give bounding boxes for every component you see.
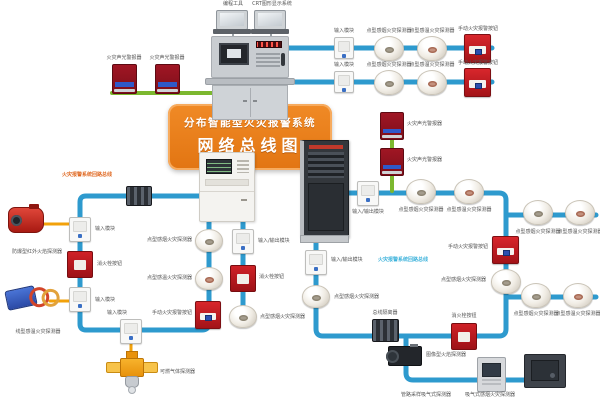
device-label: 手动火灾报警按钮: [456, 60, 501, 66]
device-label: 线型感温火灾探测器: [11, 329, 66, 335]
panel-door-seam: [200, 191, 254, 192]
device-label: 点型感温火灾探测器: [142, 275, 192, 281]
manual-call-point: [464, 34, 491, 63]
smoke-detector: [521, 283, 551, 308]
device-label: 图像型火焰探测器: [426, 352, 471, 358]
smoke-detector: [523, 200, 553, 225]
device-label: 点型感温火灾探测器: [558, 229, 600, 235]
device-label: 输入/输出模块: [331, 257, 376, 263]
aspirating-detector-wall: [477, 357, 506, 392]
hydrant-button: [230, 265, 256, 292]
bus-label-left: 火灾报警系统回路总线: [62, 172, 122, 178]
label-laptop-right: CRT图形显示系统: [249, 1, 295, 7]
device-label: 火灾声光警报器: [407, 157, 452, 163]
smoke-detector: [374, 36, 404, 61]
console-screen: [219, 43, 249, 65]
device-label: 点型感温火灾探测器: [410, 62, 455, 68]
device-label: 手动火灾报警按钮: [456, 26, 501, 32]
device-label: 点型感烟火灾探测器: [514, 311, 559, 317]
device-label: 点型感烟火灾探测器: [142, 237, 192, 243]
device-label: 输入/输出模块: [258, 238, 303, 244]
sound-light-alarm: [380, 112, 404, 140]
input-module: [334, 71, 354, 93]
panel-screen: [206, 159, 232, 174]
cabinet-base: [300, 235, 349, 243]
device-label: 点型感烟火灾探测器: [260, 314, 310, 320]
io-module: [232, 229, 254, 254]
panel-handle: [241, 199, 247, 201]
device-label: 火灾声光警报器: [102, 55, 147, 61]
cabinet-red-strip: [309, 145, 343, 149]
console-pedestal: [212, 85, 288, 120]
device-label: 手动火灾报警按钮: [142, 310, 192, 316]
hydrant-button: [451, 323, 477, 350]
smoke-detector: [195, 229, 223, 252]
input-module: [69, 287, 91, 312]
heat-detector: [417, 36, 447, 61]
gas-detector-tip: [128, 386, 136, 394]
manual-call-point: [464, 68, 491, 97]
device-label: 点型感温火灾探测器: [556, 311, 600, 317]
device-label: 防爆型红外火焰探测器: [10, 249, 65, 255]
flame-detector: [8, 207, 44, 233]
device-label: 输入/输出模块: [346, 209, 391, 215]
device-label: 点型感烟火灾探测器: [367, 62, 412, 68]
device-label: 消火栓按钮: [442, 313, 487, 319]
input-module: [334, 37, 354, 59]
heat-detector: [454, 179, 484, 204]
cabinet-module-rows: [308, 152, 344, 178]
device-label: 消火栓按钮: [259, 274, 294, 280]
laptop-crt-terminal: [254, 10, 286, 30]
console-keypad: [256, 51, 280, 67]
device-label: 火灾声光警报器: [145, 55, 190, 61]
control-console-top: [211, 36, 289, 78]
device-label: 消火栓按钮: [97, 261, 127, 267]
bus-isolator: [126, 186, 152, 206]
fire-alarm-control-panel: [199, 152, 255, 222]
bus-label-right: 火灾报警系统回路总线: [378, 257, 438, 263]
console-handle-right: [253, 100, 257, 102]
smoke-detector: [491, 269, 521, 294]
device-label: 输入模块: [322, 62, 367, 68]
device-label: 点型感烟火灾探测器: [399, 207, 444, 213]
input-module: [69, 217, 91, 242]
linkage-control-cabinet: [300, 140, 349, 238]
manual-call-point: [492, 236, 519, 264]
device-label: 点型感烟火灾探测器: [516, 229, 561, 235]
device-label: 可燃气体探测器: [160, 369, 205, 375]
sound-light-alarm: [155, 64, 180, 94]
label-laptop-left: 编程工具: [213, 1, 253, 7]
console-phone-handset: [281, 53, 285, 66]
sound-light-alarm: [112, 64, 137, 94]
device-label: 点型感烟火灾探测器: [334, 294, 384, 300]
smoke-detector: [229, 305, 257, 328]
device-label: 吸气式感烟火灾探测器: [465, 392, 515, 398]
device-label: 输入模块: [107, 310, 137, 316]
device-label: 点型感烟火灾探测器: [436, 277, 486, 283]
console-screen-window: [227, 49, 241, 58]
device-label: 手动火灾报警按钮: [438, 244, 488, 250]
console-desk-edge: [205, 78, 295, 85]
panel-keypad: [237, 160, 249, 173]
aspirating-detector-cabinet: [524, 354, 566, 388]
device-label: 点型感温火灾探测器: [410, 28, 455, 34]
device-label: 输入模块: [95, 226, 125, 232]
gas-detector: [106, 350, 156, 394]
device-label: 火灾声光警报器: [407, 121, 452, 127]
device-label: 输入模块: [322, 28, 367, 34]
sound-light-alarm: [380, 148, 404, 176]
input-module: [120, 319, 142, 344]
gas-detector-body: [120, 358, 144, 377]
device-label: 点型感温火灾探测器: [447, 207, 492, 213]
io-module: [305, 250, 327, 275]
heat-detector: [565, 200, 595, 225]
gas-detector-flange: [142, 362, 158, 373]
heat-detector: [417, 70, 447, 95]
smoke-detector: [374, 70, 404, 95]
fire-alarm-network-diagram: 分布智能型火灾报警系统 网络总线图: [0, 0, 600, 400]
console-door-seam: [250, 88, 251, 117]
smoke-detector: [406, 179, 436, 204]
device-label: 管路采样吸气式探测器: [401, 392, 451, 398]
console-led-display: [256, 41, 282, 48]
io-module: [357, 181, 379, 206]
device-label: 输入模块: [95, 297, 125, 303]
smoke-detector: [302, 285, 330, 308]
console-handle-left: [243, 100, 247, 102]
heat-detector: [563, 283, 593, 308]
laptop-programming-tool: [216, 10, 248, 30]
heat-detector: [195, 267, 223, 290]
image-flame-detector: [388, 346, 422, 366]
manual-call-point: [195, 301, 221, 329]
device-label: 总线隔离器: [363, 310, 408, 316]
cabinet-door: [308, 183, 344, 231]
hydrant-button: [67, 251, 93, 278]
bus-isolator: [372, 319, 399, 342]
panel-label-strip: [205, 179, 249, 186]
device-label: 点型感烟火灾探测器: [367, 28, 412, 34]
